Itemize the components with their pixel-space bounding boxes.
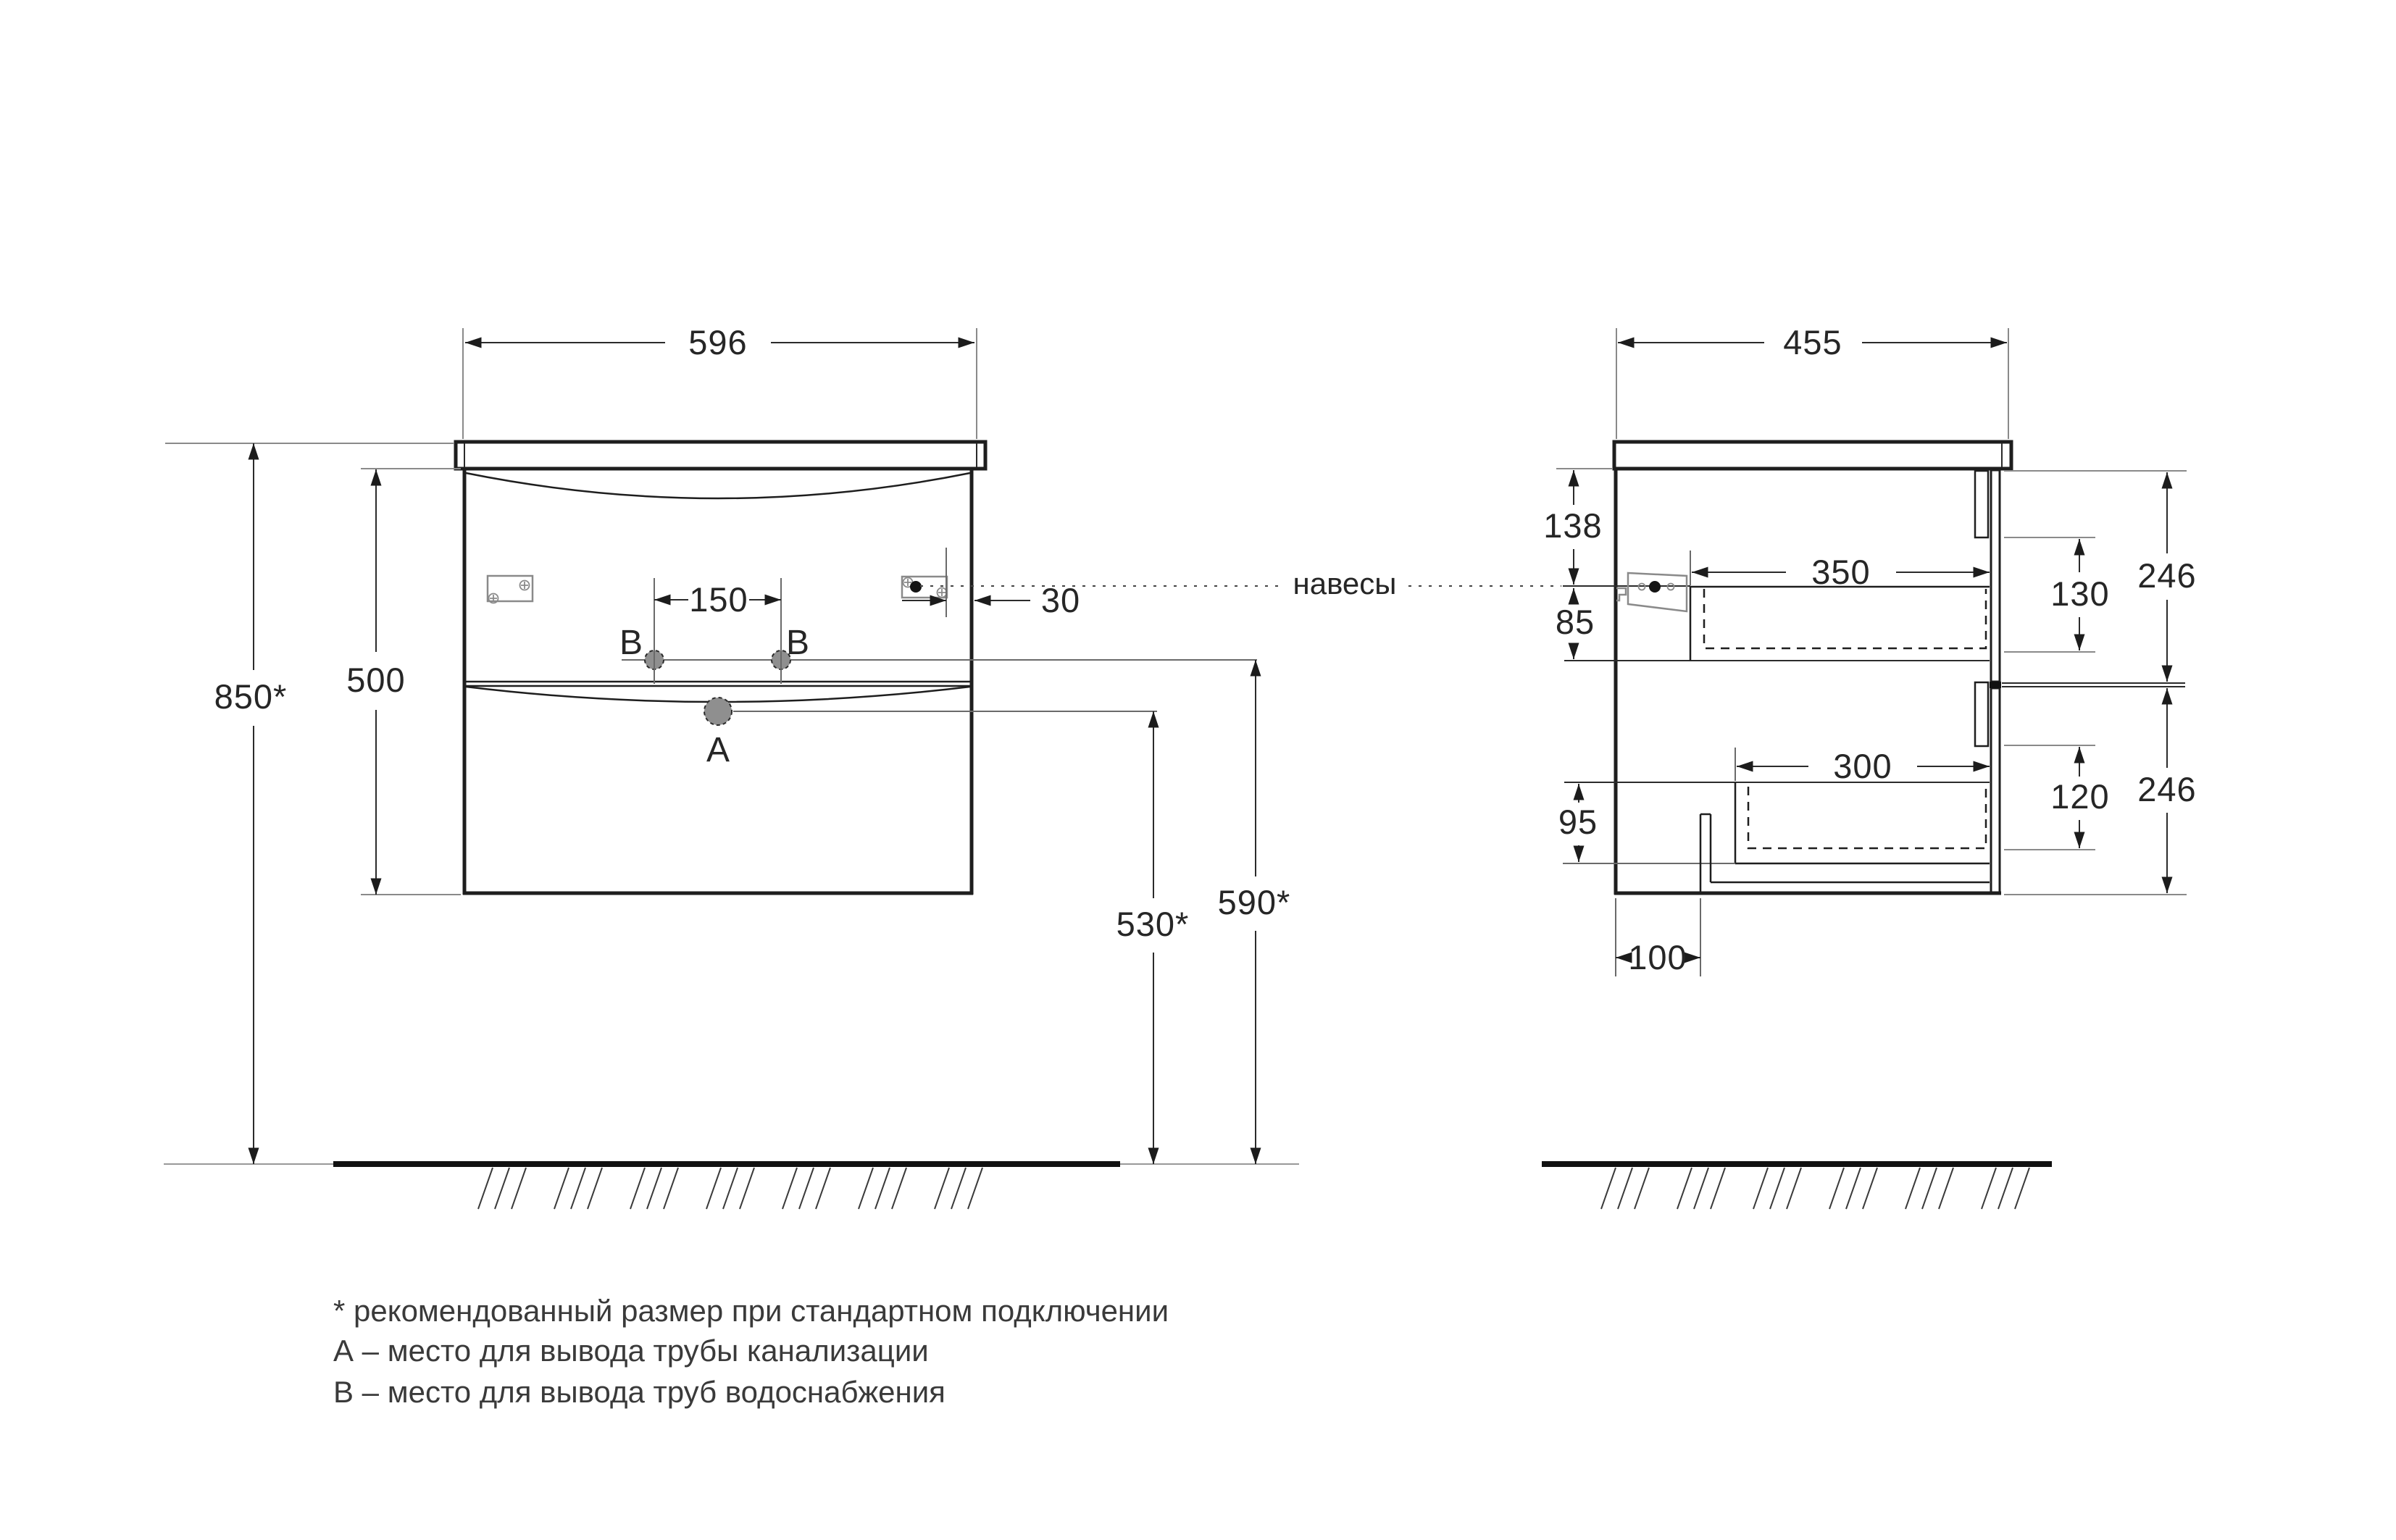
dim-top-to-hanger-text: 138 [1543, 506, 1602, 545]
legend-note: * рекомендованный размер при стандартном… [333, 1294, 1169, 1328]
floor-hatch-left [478, 1168, 982, 1209]
dim-install-height-text: 850* [214, 677, 288, 716]
hangers-label: навесы [1293, 566, 1397, 600]
front-panels-gap [1990, 682, 2001, 688]
dim-hole-spacing-150: 150 [654, 578, 781, 684]
dim-install-height-850: 850* [165, 443, 454, 1164]
dim-hinge-offset-30: 30 [902, 548, 1080, 619]
dim-pipe-cutout-text: 100 [1628, 938, 1687, 976]
point-a-label: A [706, 731, 730, 769]
dim-drawer-to-bottom-text: 95 [1558, 803, 1598, 841]
upper-drawer-front-panel [1991, 470, 2000, 682]
dim-hanger-to-drawer-85: 85 [1556, 588, 1595, 659]
dim-body-height-text: 500 [346, 661, 405, 699]
dim-top-to-hanger-138: 138 [1543, 469, 1613, 585]
dim-lower-inner-height-120: 120 [2004, 745, 2110, 850]
countertop-side [1614, 442, 2011, 469]
dim-hanger-to-drawer-text: 85 [1556, 603, 1595, 641]
front-view: B B A 596 850* 500 [165, 323, 1290, 1164]
dim-water-height-590: 590* [1218, 660, 1291, 1164]
dim-upper-front-text: 246 [2137, 556, 2196, 595]
hanger-plate-right [902, 577, 947, 598]
dim-depth-text: 455 [1783, 323, 1842, 361]
dim-upper-inner-height-text: 130 [2050, 574, 2109, 613]
legend-point-b: В – место для вывода труб водоснабжения [333, 1375, 946, 1409]
hanger-plate-left [488, 576, 533, 603]
upper-drawer-curve [466, 473, 970, 498]
pipe-cutout [1700, 814, 1990, 895]
hanger-bracket [1628, 573, 1687, 611]
hangers-callout: навесы [920, 566, 1561, 600]
upper-front-bracket [1975, 471, 1988, 537]
dim-depth-455: 455 [1616, 323, 2008, 439]
lower-drawer-front-panel [1991, 688, 2000, 894]
legend-point-a: А – место для вывода трубы канализации [333, 1334, 929, 1368]
dim-drain-height-530: 530* [1116, 711, 1190, 1164]
hanger-pin-dot [910, 581, 922, 593]
countertop-front [456, 442, 985, 469]
dim-upper-drawer-350: 350 [1690, 551, 1990, 591]
dim-upper-inner-height-130: 130 [2004, 537, 2110, 652]
dim-upper-drawer-text: 350 [1811, 553, 1870, 591]
dim-lower-front-text: 246 [2137, 770, 2196, 808]
dim-drain-height-text: 530* [1116, 905, 1190, 943]
technical-drawing-page: B B A 596 850* 500 [0, 0, 2396, 1540]
point-b-right-label: B [786, 624, 809, 662]
hanger-dot [1649, 581, 1661, 593]
point-a-hole [704, 698, 732, 725]
legend: * рекомендованный размер при стандартном… [333, 1294, 1169, 1409]
point-b-left-label: B [619, 624, 643, 662]
dim-lower-drawer-300: 300 [1735, 747, 1990, 785]
dim-body-height-500: 500 [346, 469, 461, 895]
dim-hole-spacing-text: 150 [689, 580, 748, 619]
upper-drawer-inner-dashed [1704, 589, 1986, 648]
floor-hatch-right [1601, 1168, 2029, 1209]
dim-lower-drawer-text: 300 [1833, 747, 1892, 785]
dim-pipe-cutout-100: 100 [1616, 898, 1700, 976]
side-view: 455 138 85 350 130 [1543, 323, 2196, 976]
dim-water-height-text: 590* [1218, 883, 1291, 921]
dim-width-text: 596 [688, 323, 747, 361]
lower-front-bracket [1975, 682, 1988, 746]
vanity-dimensions-drawing: B B A 596 850* 500 [0, 0, 2396, 1540]
dim-lower-inner-height-text: 120 [2050, 777, 2109, 816]
dim-drawer-to-bottom-95: 95 [1558, 784, 1598, 862]
hanger-wall-hook [1616, 588, 1626, 600]
lower-drawer-inner-dashed [1748, 787, 1986, 848]
dim-width-596: 596 [463, 323, 977, 439]
floor [164, 1164, 2052, 1209]
